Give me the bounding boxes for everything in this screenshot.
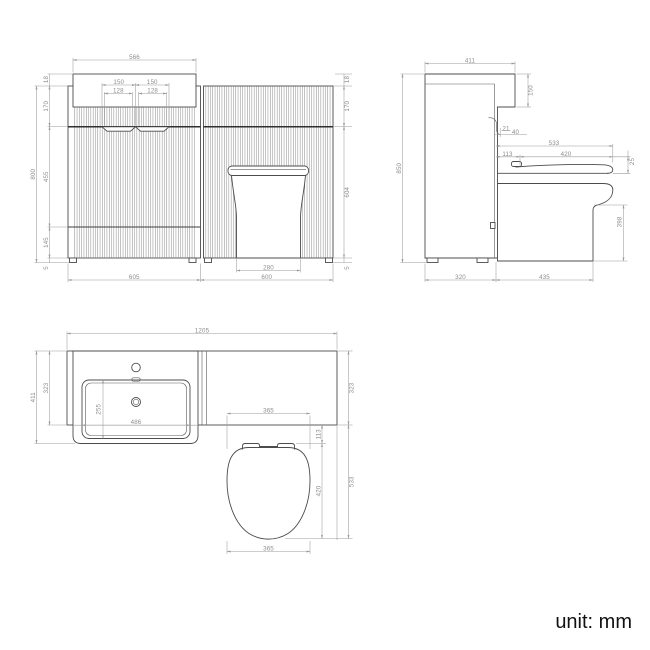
plan-view: 1205 411 323 255 486 323 365 113 420 533… <box>30 328 356 554</box>
drawing-page: 566 150 150 128 128 18 170 455 145 5 800… <box>0 0 650 650</box>
dim-plan-seat-length: 420 <box>316 485 323 496</box>
dim-toilet-unit-width: 600 <box>261 274 272 281</box>
toilet-pan-side <box>498 184 613 262</box>
front-view: 566 150 150 128 128 18 170 455 145 5 800… <box>30 54 352 282</box>
dim-right-floor-gap: 5 <box>344 266 351 270</box>
front-shapes <box>68 74 333 263</box>
foot <box>189 258 196 263</box>
foot <box>205 258 212 263</box>
dim-pan-front-height: 398 <box>617 216 624 227</box>
dim-total-height: 800 <box>30 168 37 179</box>
dim-seat-length: 420 <box>561 151 572 158</box>
dim-plan-seat-width-bottom: 365 <box>263 546 274 553</box>
dim-hook-offset: 21 <box>502 125 510 132</box>
foot <box>427 258 438 263</box>
dim-right-upper-band-height: 170 <box>344 100 351 111</box>
dim-lower-height: 145 <box>43 237 50 248</box>
vanity-fluted-panel <box>74 107 196 258</box>
toilet-seat-plan <box>227 448 310 540</box>
dim-basin-top-width: 566 <box>129 54 140 61</box>
basin-slab-front <box>73 74 196 107</box>
unit-label: unit: mm <box>555 611 632 634</box>
dim-plan-counter-depth: 323 <box>43 382 50 393</box>
toilet-seat-front <box>228 166 309 176</box>
dim-right-counter-thickness: 18 <box>344 76 351 84</box>
dim-toilet-base-width: 280 <box>263 265 274 272</box>
dim-handle-left-inner: 128 <box>113 87 124 94</box>
dim-basin-width: 486 <box>131 419 142 426</box>
dim-plan-seat-depth-total: 533 <box>349 476 356 487</box>
plan-shapes <box>67 351 337 539</box>
toilet-pan-front <box>232 176 306 259</box>
dim-vanity-width: 605 <box>129 274 140 281</box>
dim-plan-right-counter-depth: 323 <box>349 382 356 393</box>
dim-basin-depth: 255 <box>96 403 103 414</box>
dim-upper-band-height: 170 <box>43 100 50 111</box>
dim-pan-depth: 435 <box>539 274 550 281</box>
handle-right <box>136 127 170 131</box>
dim-side-total-height: 850 <box>396 162 403 173</box>
dim-basin-drop: 150 <box>528 85 535 96</box>
dim-plan-seat-back-offset: 113 <box>316 429 323 440</box>
dim-counter-depth: 411 <box>465 58 476 65</box>
dim-handle-right-width: 150 <box>147 79 158 86</box>
dim-toilet-depth-total: 533 <box>549 140 560 147</box>
handle-left <box>102 127 136 131</box>
dim-hook-depth: 40 <box>512 129 520 136</box>
dim-counter-depth-with-basin: 411 <box>30 392 37 403</box>
dim-seat-thickness: 25 <box>629 158 636 166</box>
side-handle-notch <box>491 223 496 229</box>
dim-handle-right-inner: 128 <box>147 87 158 94</box>
dim-seat-back-offset: 113 <box>502 151 513 158</box>
dim-cabinet-depth: 320 <box>455 274 466 281</box>
dim-handle-left-width: 150 <box>113 79 124 86</box>
side-shapes <box>425 74 613 263</box>
toilet-seat-side <box>516 164 613 173</box>
dim-toilet-panel-height: 604 <box>344 186 351 197</box>
foot <box>477 258 488 263</box>
foot <box>326 258 333 263</box>
technical-drawing: 566 150 150 128 128 18 170 455 145 5 800… <box>0 0 650 650</box>
dim-plan-total-width: 1205 <box>195 328 210 335</box>
foot <box>70 258 77 263</box>
dim-counter-thickness: 18 <box>43 76 50 84</box>
side-view: 411 150 21 40 533 113 420 25 398 850 320… <box>396 58 636 282</box>
dim-mid-height: 455 <box>43 171 50 182</box>
dim-floor-gap: 5 <box>43 266 50 270</box>
dim-plan-seat-width: 365 <box>263 408 274 415</box>
